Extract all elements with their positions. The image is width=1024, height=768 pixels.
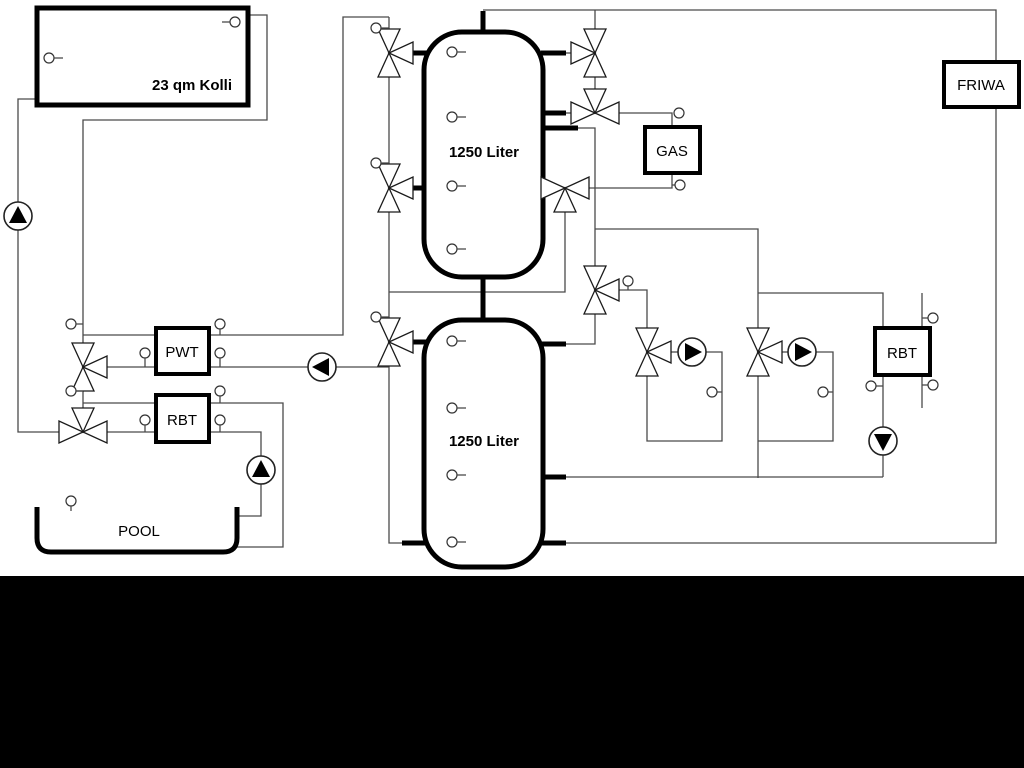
pump-rbt-right (869, 427, 897, 455)
pump-solar (4, 202, 32, 230)
schematic-svg: 23 qm Kolli 1250 Liter 1250 Liter GAS FR (0, 0, 1024, 768)
pump-heating-2 (788, 338, 816, 366)
rbt-left-label: RBT (167, 412, 197, 429)
solar-collector: 23 qm Kolli (37, 8, 248, 105)
pump-heating-1 (678, 338, 706, 366)
buffer-tank-bottom: 1250 Liter (424, 320, 543, 567)
pwt-label: PWT (165, 344, 198, 361)
buffer-tank-top: 1250 Liter (424, 32, 543, 277)
pool-label: POOL (118, 523, 160, 540)
friwa-label: FRIWA (957, 77, 1005, 94)
friwa-station: FRIWA (944, 62, 1019, 107)
gas-boiler-label: GAS (656, 143, 688, 160)
bottom-black-band (0, 576, 1024, 768)
gas-boiler: GAS (645, 127, 700, 173)
pump-pool (247, 456, 275, 484)
buffer-tank-top-label: 1250 Liter (449, 144, 519, 161)
schematic-canvas: 23 qm Kolli 1250 Liter 1250 Liter GAS FR (0, 0, 1024, 768)
rbt-right-label: RBT (887, 345, 917, 362)
buffer-tank-bottom-label: 1250 Liter (449, 433, 519, 450)
rbt-right-heat-exchanger: RBT (875, 328, 930, 375)
rbt-left-heat-exchanger: RBT (156, 395, 209, 442)
pump-pwt (308, 353, 336, 381)
collector-label: 23 qm Kolli (152, 77, 232, 94)
pwt-heat-exchanger: PWT (156, 328, 209, 374)
